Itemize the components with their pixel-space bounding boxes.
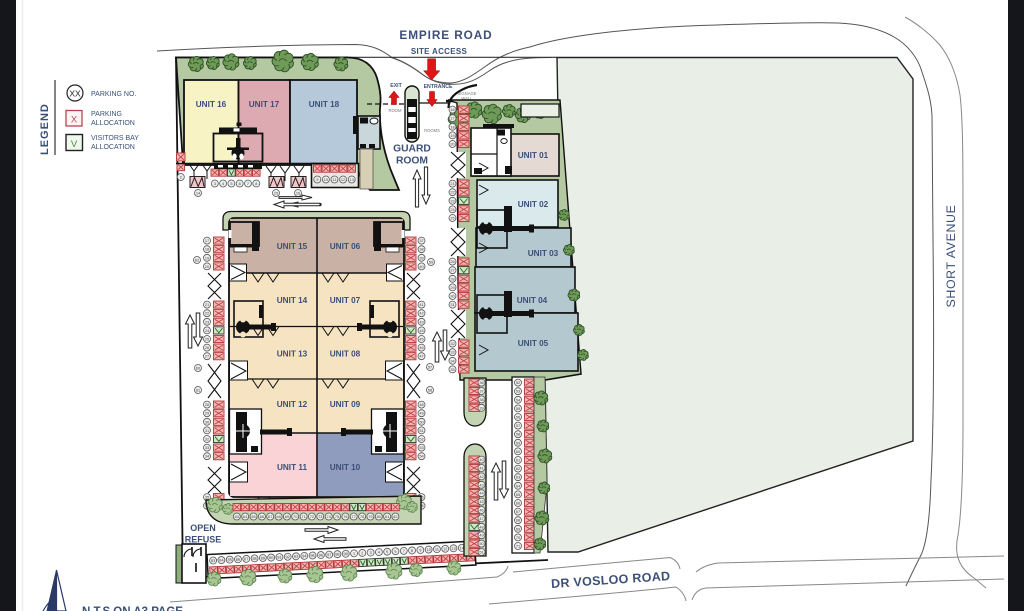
svg-text:UNIT 16: UNIT 16 <box>196 100 227 109</box>
svg-text:58: 58 <box>516 432 520 437</box>
svg-text:23: 23 <box>450 198 454 203</box>
svg-text:18: 18 <box>205 247 209 252</box>
svg-text:16: 16 <box>450 107 454 112</box>
svg-text:97: 97 <box>327 552 332 557</box>
svg-text:61: 61 <box>196 388 200 393</box>
svg-text:27: 27 <box>450 268 454 273</box>
svg-text:UNIT 15: UNIT 15 <box>277 242 308 251</box>
svg-text:66: 66 <box>516 501 520 506</box>
svg-text:19: 19 <box>205 255 209 260</box>
svg-text:73: 73 <box>318 514 322 519</box>
svg-text:21: 21 <box>205 302 209 307</box>
svg-text:68: 68 <box>516 518 520 523</box>
svg-text:47: 47 <box>479 516 483 521</box>
svg-text:45: 45 <box>419 337 423 342</box>
svg-text:42: 42 <box>479 474 483 479</box>
svg-text:9: 9 <box>316 177 318 182</box>
svg-text:71: 71 <box>516 544 520 549</box>
svg-text:UNIT 01: UNIT 01 <box>518 151 549 160</box>
svg-text:26: 26 <box>450 259 454 264</box>
svg-text:12: 12 <box>443 546 448 551</box>
svg-text:UNIT 06: UNIT 06 <box>330 242 361 251</box>
svg-text:89: 89 <box>261 555 266 560</box>
svg-text:31: 31 <box>205 428 209 433</box>
svg-text:33: 33 <box>450 350 454 355</box>
svg-text:88: 88 <box>252 556 257 561</box>
svg-text:81: 81 <box>385 514 389 519</box>
svg-text:67: 67 <box>268 514 272 519</box>
svg-text:35: 35 <box>205 495 209 500</box>
svg-text:99: 99 <box>343 551 348 556</box>
svg-text:65: 65 <box>251 514 255 519</box>
svg-text:13: 13 <box>451 546 456 551</box>
svg-text:25: 25 <box>450 216 454 221</box>
svg-text:67: 67 <box>516 509 520 514</box>
svg-text:8: 8 <box>255 181 257 186</box>
svg-text:43: 43 <box>479 482 483 487</box>
svg-text:72: 72 <box>310 514 314 519</box>
svg-text:38: 38 <box>419 247 423 252</box>
svg-text:11: 11 <box>435 547 439 552</box>
svg-text:32: 32 <box>205 437 209 442</box>
svg-text:EMPIRE ROAD: EMPIRE ROAD <box>399 28 492 42</box>
svg-text:96: 96 <box>319 552 324 557</box>
svg-text:3: 3 <box>369 550 371 555</box>
svg-text:77: 77 <box>352 514 356 519</box>
svg-text:GUARD: GUARD <box>393 144 431 155</box>
svg-text:38: 38 <box>479 397 483 402</box>
svg-text:93: 93 <box>294 554 299 559</box>
svg-text:49: 49 <box>419 411 423 416</box>
svg-text:UNIT 12: UNIT 12 <box>277 400 308 409</box>
svg-text:57: 57 <box>516 423 520 428</box>
svg-text:17: 17 <box>205 238 209 243</box>
svg-text:UNIT 08: UNIT 08 <box>330 350 361 359</box>
svg-text:UNIT 09: UNIT 09 <box>330 400 361 409</box>
svg-text:66: 66 <box>260 514 264 519</box>
svg-text:56: 56 <box>516 415 520 420</box>
svg-text:61: 61 <box>516 458 520 463</box>
svg-text:1: 1 <box>353 551 355 556</box>
svg-text:32: 32 <box>450 341 454 346</box>
svg-text:31: 31 <box>450 302 454 307</box>
svg-text:59: 59 <box>516 440 520 445</box>
svg-text:SHORT AVENUE: SHORT AVENUE <box>944 205 958 308</box>
svg-text:36: 36 <box>479 380 483 385</box>
svg-text:51: 51 <box>479 550 483 555</box>
svg-text:79: 79 <box>368 514 372 519</box>
svg-text:8: 8 <box>411 548 413 553</box>
svg-text:UNIT 13: UNIT 13 <box>277 350 308 359</box>
svg-text:69: 69 <box>285 514 289 519</box>
svg-text:UNIT 18: UNIT 18 <box>309 100 340 109</box>
svg-text:9: 9 <box>419 547 421 552</box>
svg-text:ROOM: ROOM <box>388 108 402 113</box>
svg-text:19: 19 <box>450 133 454 138</box>
svg-text:58: 58 <box>428 388 432 393</box>
svg-text:REFUSE: REFUSE <box>185 535 222 545</box>
svg-text:22: 22 <box>205 311 209 316</box>
svg-text:VISITORS BAY: VISITORS BAY <box>91 135 139 142</box>
svg-text:83: 83 <box>211 558 216 563</box>
svg-text:UNIT 10: UNIT 10 <box>330 463 361 472</box>
svg-text:52: 52 <box>419 437 423 442</box>
svg-text:UNIT 02: UNIT 02 <box>518 200 549 209</box>
svg-text:92: 92 <box>285 554 290 559</box>
svg-text:15: 15 <box>274 191 278 196</box>
svg-text:EXIT: EXIT <box>390 83 402 89</box>
svg-text:UNIT 04: UNIT 04 <box>517 296 548 305</box>
svg-text:23: 23 <box>205 319 209 324</box>
svg-text:87: 87 <box>244 556 249 561</box>
svg-text:SITE ACCESS: SITE ACCESS <box>411 47 468 56</box>
svg-text:2: 2 <box>180 175 182 180</box>
svg-text:ROOM: ROOM <box>396 156 428 167</box>
svg-text:LEGEND: LEGEND <box>39 103 51 155</box>
svg-text:39: 39 <box>419 255 423 260</box>
svg-text:22: 22 <box>450 190 454 195</box>
svg-text:PARKING NO.: PARKING NO. <box>91 91 136 98</box>
svg-text:UNIT 14: UNIT 14 <box>277 296 308 305</box>
svg-text:71: 71 <box>301 514 305 519</box>
svg-text:UNIT 07: UNIT 07 <box>330 296 361 305</box>
svg-text:ALLOCATION: ALLOCATION <box>91 120 135 127</box>
svg-text:21: 21 <box>450 181 454 186</box>
svg-text:41: 41 <box>419 302 423 307</box>
svg-text:95: 95 <box>310 553 315 558</box>
svg-text:55: 55 <box>516 406 520 411</box>
svg-text:XX: XX <box>69 89 81 99</box>
svg-text:5: 5 <box>386 549 388 554</box>
svg-text:6: 6 <box>394 549 396 554</box>
svg-text:53: 53 <box>419 445 423 450</box>
svg-text:43: 43 <box>419 319 423 324</box>
svg-text:78: 78 <box>360 514 364 519</box>
svg-text:49: 49 <box>479 533 483 538</box>
svg-text:6: 6 <box>239 181 241 186</box>
svg-text:2: 2 <box>361 550 363 555</box>
svg-text:46: 46 <box>479 508 483 513</box>
svg-text:68: 68 <box>276 514 280 519</box>
svg-text:47: 47 <box>419 354 423 359</box>
svg-text:UNIT 17: UNIT 17 <box>249 100 280 109</box>
svg-text:86: 86 <box>236 557 241 562</box>
svg-text:29: 29 <box>450 285 454 290</box>
svg-text:UNIT 11: UNIT 11 <box>277 463 307 472</box>
svg-text:28: 28 <box>205 402 209 407</box>
svg-text:91: 91 <box>277 555 282 560</box>
svg-text:63: 63 <box>516 475 520 480</box>
svg-text:ALLOCATION: ALLOCATION <box>91 144 135 151</box>
svg-text:N.T.S ON A3 PAGE: N.T.S ON A3 PAGE <box>82 606 183 611</box>
svg-text:37: 37 <box>419 238 423 243</box>
svg-text:11: 11 <box>332 177 336 182</box>
svg-text:17: 17 <box>450 116 454 121</box>
svg-text:98: 98 <box>335 552 340 557</box>
svg-text:UNIT 03: UNIT 03 <box>528 249 559 258</box>
svg-text:46: 46 <box>419 345 423 350</box>
svg-text:7: 7 <box>403 548 405 553</box>
svg-text:26: 26 <box>205 345 209 350</box>
svg-text:51: 51 <box>419 428 423 433</box>
svg-text:ROOMS: ROOMS <box>424 128 440 133</box>
svg-text:25: 25 <box>205 337 209 342</box>
svg-text:69: 69 <box>516 526 520 531</box>
svg-text:28: 28 <box>450 276 454 281</box>
svg-text:82: 82 <box>393 514 397 519</box>
svg-text:85: 85 <box>227 557 232 562</box>
svg-text:13: 13 <box>350 177 354 182</box>
svg-text:62: 62 <box>195 258 199 263</box>
svg-text:12: 12 <box>341 177 345 182</box>
svg-text:59: 59 <box>429 260 433 265</box>
svg-text:V: V <box>71 139 78 150</box>
svg-text:OPEN: OPEN <box>190 523 216 533</box>
svg-text:48: 48 <box>419 402 423 407</box>
svg-text:57: 57 <box>428 365 432 370</box>
svg-text:42: 42 <box>419 311 423 316</box>
svg-text:39: 39 <box>479 405 483 410</box>
svg-text:33: 33 <box>205 445 209 450</box>
svg-text:53: 53 <box>516 389 520 394</box>
svg-text:76: 76 <box>343 514 347 519</box>
svg-text:37: 37 <box>479 389 483 394</box>
svg-text:UNIT 05: UNIT 05 <box>518 339 549 348</box>
svg-text:52: 52 <box>516 380 520 385</box>
svg-text:X: X <box>71 115 78 126</box>
svg-text:ENTRANCE: ENTRANCE <box>424 84 453 90</box>
svg-text:3: 3 <box>214 181 216 186</box>
svg-text:27: 27 <box>205 354 209 359</box>
svg-text:63: 63 <box>235 514 239 519</box>
svg-text:18: 18 <box>450 124 454 129</box>
svg-text:7: 7 <box>247 181 249 186</box>
svg-text:5: 5 <box>230 181 232 186</box>
svg-text:29: 29 <box>205 411 209 416</box>
svg-text:75: 75 <box>335 514 339 519</box>
svg-text:16: 16 <box>296 191 300 196</box>
svg-text:45: 45 <box>479 499 483 504</box>
svg-text:65: 65 <box>516 492 520 497</box>
svg-text:48: 48 <box>479 524 483 529</box>
svg-text:PARKING: PARKING <box>91 111 122 118</box>
svg-text:35: 35 <box>450 367 454 372</box>
svg-text:62: 62 <box>516 466 520 471</box>
svg-text:41: 41 <box>479 466 483 471</box>
